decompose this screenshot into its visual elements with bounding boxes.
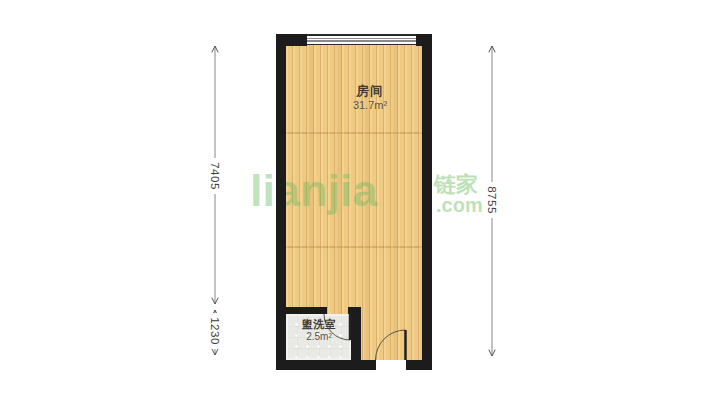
- dimension-label-7405: 7405: [208, 158, 222, 194]
- room-name: 房间: [330, 84, 410, 98]
- dimension-label-1230: 1230: [208, 313, 222, 349]
- plan-annotations: [0, 0, 710, 400]
- floor-plan-canvas: lianjia 链家 .com 房间 31.7m² 盥洗室 2.5m²: [0, 0, 710, 400]
- room-label-washroom: 盥洗室 2.5m²: [288, 318, 350, 342]
- washroom-name: 盥洗室: [288, 318, 350, 330]
- room-area: 31.7m²: [330, 99, 410, 112]
- room-label-main: 房间 31.7m²: [330, 84, 410, 112]
- dimension-label-8755: 8755: [485, 182, 499, 218]
- washroom-area: 2.5m²: [288, 331, 350, 342]
- entry-door-swing-arc: [376, 330, 406, 360]
